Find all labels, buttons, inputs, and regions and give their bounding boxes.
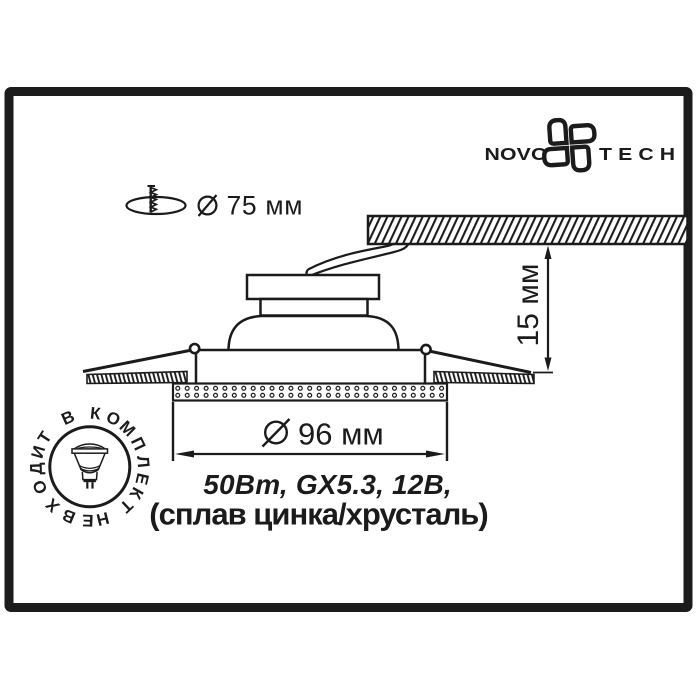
svg-text:Л: Л bbox=[133, 455, 153, 469]
svg-text:Е: Е bbox=[82, 511, 94, 530]
svg-text:96 мм: 96 мм bbox=[298, 417, 384, 452]
svg-text:(сплав цинка/хрусталь): (сплав цинка/хрусталь) bbox=[149, 497, 488, 532]
svg-text:15 мм: 15 мм bbox=[512, 264, 545, 347]
svg-text:50Вт, GX5.3, 12В,: 50Вт, GX5.3, 12В, bbox=[203, 469, 451, 500]
svg-text:NOVO: NOVO bbox=[485, 144, 548, 164]
svg-text:75 мм: 75 мм bbox=[227, 191, 303, 221]
svg-text:Д: Д bbox=[27, 462, 46, 475]
